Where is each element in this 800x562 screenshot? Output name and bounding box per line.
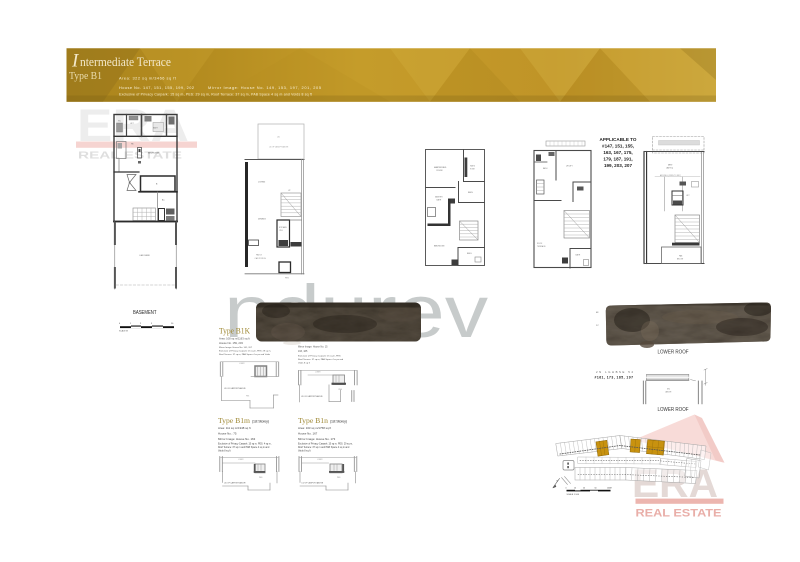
- svg-text:Type B1: Type B1: [69, 71, 102, 82]
- svg-text:SCALE M: SCALE M: [119, 330, 128, 333]
- svg-text:163, 165: 163, 165: [298, 350, 308, 353]
- svg-text:0: 0: [119, 323, 121, 325]
- svg-text:Voids 8 sq ft: Voids 8 sq ft: [218, 450, 231, 453]
- svg-text:House No. 167: House No. 167: [298, 432, 318, 436]
- svg-text:Exclusive of Privacy Carpark:: Exclusive of Privacy Carpark: 15 sq m, P…: [119, 93, 312, 97]
- svg-text:Voids 8 sq ft: Voids 8 sq ft: [298, 362, 310, 365]
- svg-text:LIVING: LIVING: [258, 182, 265, 184]
- svg-text:M/C: M/C: [667, 389, 671, 391]
- svg-text:Area: 108 sq m/1163 sq ft: Area: 108 sq m/1163 sq ft: [219, 337, 250, 341]
- svg-text:Exclusive of Privacy Carpark:: Exclusive of Privacy Carpark: 15 sq m, P…: [298, 443, 353, 446]
- svg-text:House No.: 75: House No.: 75: [218, 432, 237, 436]
- svg-text:ntermediate Terrace: ntermediate Terrace: [80, 54, 171, 69]
- svg-text:UTILITY: UTILITY: [566, 166, 573, 168]
- svg-text:PATIO/: PATIO/: [256, 254, 262, 257]
- svg-text:AIR WELL (OPEN TO SKY): AIR WELL (OPEN TO SKY): [660, 174, 681, 177]
- svg-text:BELOW: BELOW: [677, 259, 684, 261]
- svg-text:House No. 159, 203: House No. 159, 203: [219, 341, 243, 345]
- svg-text:SCALE 1:500: SCALE 1:500: [567, 493, 580, 496]
- svg-text:TERRACE: TERRACE: [537, 245, 546, 248]
- svg-text:LOBBY: LOBBY: [239, 363, 246, 365]
- svg-text:CAR PARK: CAR PARK: [139, 254, 151, 257]
- svg-text:Roof Terrace: 37 sq m and PAB: Roof Terrace: 37 sq m and PAB Space 4 sq…: [218, 446, 270, 449]
- svg-text:L/D OF CANOPY ABOVE: L/D OF CANOPY ABOVE: [269, 146, 289, 149]
- svg-text:Mirror Image: House No. 149, 1: Mirror Image: House No. 149, 153, 197, 2…: [208, 85, 321, 90]
- svg-text:(1st Storey): (1st Storey): [252, 420, 269, 424]
- svg-text:0: 0: [566, 487, 567, 489]
- svg-text:Area: 111 sq m/1948 sq ft: Area: 111 sq m/1948 sq ft: [218, 426, 251, 430]
- svg-text:1: 1: [130, 323, 132, 325]
- svg-text:199, 203, 207: 199, 203, 207: [604, 163, 633, 168]
- svg-text:L/D OF CARPORT ABOVE: L/D OF CARPORT ABOVE: [224, 387, 246, 390]
- svg-text:PAB: PAB: [679, 255, 683, 258]
- svg-text:LOBBY: LOBBY: [315, 372, 322, 374]
- svg-text:LOWER ROOF: LOWER ROOF: [658, 350, 689, 356]
- svg-text:Type B1n: Type B1n: [298, 416, 328, 425]
- svg-text:(ATTIC): (ATTIC): [667, 167, 674, 170]
- svg-text:LOBBY: LOBBY: [317, 459, 324, 461]
- svg-text:House No. 147, 151, 155, 199,: House No. 147, 151, 155, 199, 202: [119, 85, 194, 90]
- svg-text:Mirror Image: House No. 173: Mirror Image: House No. 173: [298, 437, 336, 441]
- svg-text:REAL ESTATE: REAL ESTATE: [636, 508, 722, 520]
- svg-text:Roof Terrace: 37 sq m, PAB Spa: Roof Terrace: 37 sq m, PAB Space 4 sq m …: [219, 353, 271, 356]
- svg-text:50: 50: [595, 487, 597, 489]
- svg-text:Exclusive of Privacy Carpark:: Exclusive of Privacy Carpark: 15 sq m, P…: [298, 355, 341, 358]
- svg-text:Exclusive of Privacy Carpark:: Exclusive of Privacy Carpark: 15 sq m, P…: [218, 443, 272, 446]
- svg-text:PES: PES: [259, 477, 263, 479]
- svg-text:BATH: BATH: [543, 167, 548, 170]
- svg-text:BEDROOM: BEDROOM: [148, 153, 159, 155]
- svg-text:2: 2: [140, 323, 142, 325]
- svg-text:20: 20: [583, 487, 585, 489]
- svg-text:#161, 173, 185, 197: #161, 173, 185, 197: [595, 375, 634, 379]
- svg-text:5: 5: [151, 323, 153, 325]
- svg-text:L/D OF CARPORT ABOVE: L/D OF CARPORT ABOVE: [224, 482, 246, 485]
- svg-text:Voids 8 sq ft: Voids 8 sq ft: [298, 450, 311, 453]
- svg-text:Roof Terrace: 37 sq m, PAB Spa: Roof Terrace: 37 sq m, PAB Space 4 sq m …: [298, 358, 344, 361]
- svg-text:Mirror Image: House No. 163: Mirror Image: House No. 163: [218, 437, 256, 441]
- svg-text:ABOVE: ABOVE: [666, 391, 673, 394]
- svg-text:ROOM: ROOM: [437, 170, 443, 172]
- svg-text:CAR PORCH: CAR PORCH: [255, 257, 267, 260]
- svg-text:WARD: WARD: [470, 165, 476, 168]
- svg-text:MIST: MIST: [668, 165, 673, 167]
- svg-text:KITCHEN: KITCHEN: [279, 227, 287, 229]
- svg-text:(1st Storey): (1st Storey): [330, 420, 347, 424]
- svg-text:BATH: BATH: [576, 254, 581, 257]
- svg-text:MASTER BED: MASTER BED: [434, 166, 447, 169]
- svg-text:BASEMENT: BASEMENT: [133, 310, 157, 316]
- svg-text:163, 167, 175,: 163, 167, 175,: [603, 150, 632, 155]
- svg-text:17:: 17:: [596, 325, 599, 327]
- svg-text:AC: AC: [162, 199, 165, 202]
- svg-text:MASTER: MASTER: [435, 196, 443, 199]
- svg-text:L/D OF CARPORT ABOVE: L/D OF CARPORT ABOVE: [302, 482, 324, 485]
- svg-text:Type B1K: Type B1K: [219, 327, 250, 336]
- svg-text:REAL ESTATE: REAL ESTATE: [78, 150, 182, 162]
- svg-text:UP: UP: [288, 190, 291, 192]
- svg-text:ROOF: ROOF: [537, 243, 543, 245]
- svg-text:#147, 151, 155,: #147, 151, 155,: [602, 144, 634, 149]
- svg-text:APPLICABLE TO: APPLICABLE TO: [600, 137, 637, 142]
- svg-text:BATH: BATH: [437, 199, 442, 202]
- svg-text:L/D OF CARPORT ABOVE: L/D OF CARPORT ABOVE: [301, 395, 323, 398]
- svg-text:BATH: BATH: [468, 191, 474, 194]
- svg-text:Area: 163 sq m/1758 sq ft: Area: 163 sq m/1758 sq ft: [298, 426, 331, 430]
- svg-text:PES: PES: [246, 396, 249, 398]
- svg-text:LOBBY: LOBBY: [238, 459, 245, 461]
- svg-text:10: 10: [171, 323, 174, 325]
- svg-text:LOWER ROOF: LOWER ROOF: [658, 407, 689, 413]
- svg-text:PES: PES: [337, 477, 341, 479]
- svg-text:LIFT: LIFT: [686, 195, 689, 197]
- svg-text:L/D: L/D: [277, 137, 281, 139]
- svg-text:Roof Terrace: 37 sq m and PAB: Roof Terrace: 37 sq m and PAB Space 4 sq…: [298, 446, 350, 449]
- svg-text:Type B1m: Type B1m: [218, 416, 250, 425]
- svg-text:Area: 322 sq m/3466 sq ft: Area: 322 sq m/3466 sq ft: [119, 76, 177, 81]
- svg-text:Mirror Image: House No. 15: Mirror Image: House No. 15: [298, 346, 328, 349]
- svg-text:ROBE: ROBE: [470, 169, 476, 171]
- svg-text:179, 187, 191,: 179, 187, 191,: [603, 157, 632, 162]
- svg-text:Exclusive of Privacy Carpark:: Exclusive of Privacy Carpark: 15 sq m, P…: [219, 350, 271, 353]
- svg-text:BATH: BATH: [467, 252, 472, 255]
- svg-text:B: B: [156, 184, 158, 186]
- svg-text:100M: 100M: [607, 487, 612, 489]
- svg-text:BATH: BATH: [153, 127, 158, 130]
- svg-text:Mirror Image: House No. 161, 2: Mirror Image: House No. 161, 207: [219, 346, 253, 349]
- svg-text:PLD: PLD: [280, 230, 284, 232]
- svg-text:2N LGHBSE 52: 2N LGHBSE 52: [596, 370, 633, 374]
- svg-text:4F: 4F: [596, 312, 599, 314]
- svg-text:10: 10: [574, 487, 576, 489]
- svg-text:DINING: DINING: [258, 219, 266, 221]
- svg-text:BEDROOM: BEDROOM: [434, 246, 445, 248]
